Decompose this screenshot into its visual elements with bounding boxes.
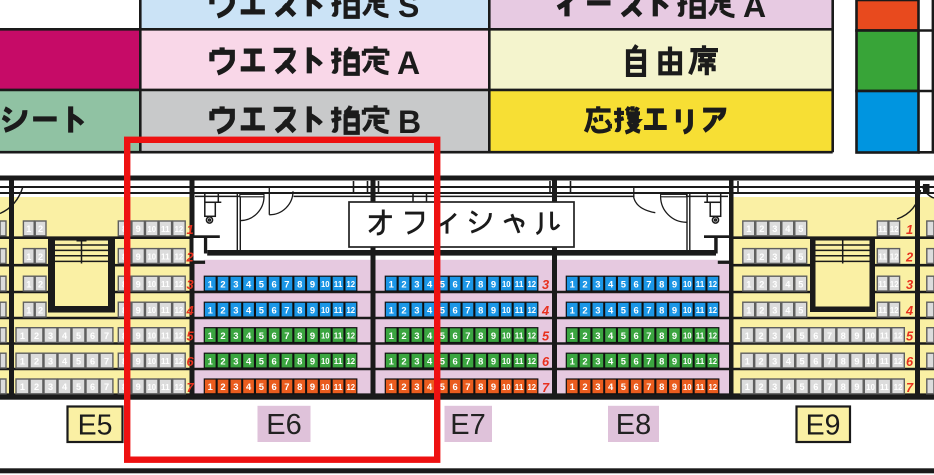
svg-text:3: 3 <box>906 277 913 292</box>
svg-text:6: 6 <box>633 355 638 366</box>
svg-text:7: 7 <box>284 381 289 392</box>
svg-text:E8: E8 <box>616 409 651 441</box>
svg-text:7: 7 <box>104 356 109 366</box>
svg-text:9: 9 <box>491 355 496 366</box>
svg-text:10: 10 <box>148 253 157 262</box>
svg-text:1: 1 <box>26 224 31 234</box>
svg-text:3: 3 <box>595 355 600 366</box>
svg-text:4: 4 <box>427 355 433 366</box>
svg-text:4: 4 <box>608 381 614 392</box>
svg-text:11: 11 <box>878 280 887 289</box>
svg-text:6: 6 <box>452 278 457 289</box>
svg-text:3: 3 <box>414 381 419 392</box>
svg-text:12: 12 <box>890 280 899 289</box>
svg-text:3: 3 <box>48 356 53 366</box>
svg-text:1: 1 <box>208 278 213 289</box>
svg-text:3: 3 <box>414 355 419 366</box>
svg-text:11: 11 <box>515 305 524 315</box>
svg-text:6: 6 <box>633 330 638 341</box>
svg-text:1: 1 <box>745 331 750 341</box>
svg-text:9: 9 <box>672 355 677 366</box>
svg-text:2: 2 <box>582 355 587 366</box>
svg-text:6: 6 <box>813 356 818 366</box>
svg-text:2: 2 <box>38 252 43 262</box>
svg-text:7: 7 <box>465 381 470 392</box>
svg-text:9: 9 <box>491 330 496 341</box>
svg-text:5: 5 <box>76 382 81 392</box>
svg-text:5: 5 <box>259 304 264 315</box>
svg-text:5: 5 <box>259 278 264 289</box>
svg-text:4: 4 <box>608 278 614 289</box>
svg-text:8: 8 <box>659 304 664 315</box>
svg-text:11: 11 <box>515 331 524 341</box>
svg-text:11: 11 <box>878 253 887 262</box>
svg-text:3: 3 <box>48 382 53 392</box>
svg-text:6: 6 <box>906 354 914 369</box>
svg-text:11: 11 <box>334 356 343 366</box>
svg-text:5: 5 <box>621 304 626 315</box>
svg-text:3: 3 <box>233 278 238 289</box>
svg-text:9: 9 <box>672 304 677 315</box>
svg-text:5: 5 <box>440 330 445 341</box>
svg-text:3: 3 <box>595 278 600 289</box>
svg-text:7: 7 <box>284 304 289 315</box>
svg-text:2: 2 <box>759 224 764 234</box>
svg-text:2: 2 <box>220 355 225 366</box>
svg-text:4: 4 <box>608 304 614 315</box>
svg-text:5: 5 <box>76 331 81 341</box>
svg-text:1: 1 <box>208 381 213 392</box>
svg-text:4: 4 <box>62 356 68 366</box>
svg-text:11: 11 <box>696 279 705 289</box>
svg-text:2: 2 <box>34 331 39 341</box>
svg-text:6: 6 <box>271 304 276 315</box>
svg-text:10: 10 <box>866 357 875 366</box>
svg-text:2: 2 <box>759 279 764 289</box>
svg-text:1: 1 <box>186 222 193 237</box>
svg-text:10: 10 <box>148 306 157 315</box>
svg-text:4: 4 <box>62 331 68 341</box>
svg-text:1: 1 <box>389 330 394 341</box>
svg-text:5: 5 <box>798 252 803 262</box>
svg-text:4: 4 <box>246 355 252 366</box>
svg-text:5: 5 <box>800 331 805 341</box>
svg-text:2: 2 <box>582 330 587 341</box>
svg-text:5: 5 <box>440 381 445 392</box>
svg-text:6: 6 <box>813 382 818 392</box>
svg-text:2: 2 <box>38 305 43 315</box>
svg-text:7: 7 <box>186 380 194 395</box>
svg-text:1: 1 <box>208 330 213 341</box>
svg-text:6: 6 <box>271 278 276 289</box>
svg-text:2: 2 <box>401 381 406 392</box>
svg-text:A: A <box>743 0 766 24</box>
svg-text:1: 1 <box>745 356 750 366</box>
svg-text:5: 5 <box>186 329 194 344</box>
svg-text:6: 6 <box>452 304 457 315</box>
svg-text:11: 11 <box>334 382 343 392</box>
svg-text:11: 11 <box>161 357 170 366</box>
svg-text:10: 10 <box>502 279 511 289</box>
svg-text:12: 12 <box>347 279 356 289</box>
svg-text:10: 10 <box>683 279 692 289</box>
svg-text:9: 9 <box>310 304 315 315</box>
svg-text:4: 4 <box>541 303 549 318</box>
svg-text:5: 5 <box>798 305 803 315</box>
svg-text:12: 12 <box>890 306 899 315</box>
svg-text:11: 11 <box>161 383 170 392</box>
svg-text:5: 5 <box>259 381 264 392</box>
svg-text:11: 11 <box>161 306 170 315</box>
svg-text:10: 10 <box>148 332 157 341</box>
svg-text:6: 6 <box>271 330 276 341</box>
svg-text:3: 3 <box>595 381 600 392</box>
svg-text:4: 4 <box>786 356 792 366</box>
svg-text:8: 8 <box>659 330 664 341</box>
svg-text:7: 7 <box>465 304 470 315</box>
svg-text:E6: E6 <box>266 409 301 441</box>
svg-text:3: 3 <box>772 382 777 392</box>
svg-text:12: 12 <box>894 357 903 366</box>
svg-text:10: 10 <box>683 382 692 392</box>
svg-text:2: 2 <box>758 382 763 392</box>
svg-text:5: 5 <box>440 278 445 289</box>
svg-text:12: 12 <box>528 279 537 289</box>
svg-text:12: 12 <box>347 356 356 366</box>
svg-text:7: 7 <box>646 330 651 341</box>
svg-text:8: 8 <box>297 381 302 392</box>
svg-text:8: 8 <box>478 304 483 315</box>
svg-text:11: 11 <box>696 331 705 341</box>
svg-text:10: 10 <box>502 382 511 392</box>
svg-text:2: 2 <box>582 304 587 315</box>
svg-text:4: 4 <box>905 303 913 318</box>
svg-text:8: 8 <box>297 355 302 366</box>
svg-text:3: 3 <box>772 252 777 262</box>
svg-text:2: 2 <box>401 330 406 341</box>
svg-text:10: 10 <box>321 382 330 392</box>
svg-text:10: 10 <box>148 383 157 392</box>
svg-text:11: 11 <box>696 356 705 366</box>
svg-text:7: 7 <box>646 355 651 366</box>
svg-text:7: 7 <box>465 330 470 341</box>
svg-text:4: 4 <box>246 278 252 289</box>
svg-text:3: 3 <box>186 277 193 292</box>
svg-text:3: 3 <box>542 277 549 292</box>
svg-text:2: 2 <box>759 252 764 262</box>
svg-text:4: 4 <box>246 304 252 315</box>
svg-text:10: 10 <box>148 280 157 289</box>
svg-text:7: 7 <box>646 278 651 289</box>
svg-text:4: 4 <box>608 355 614 366</box>
svg-text:11: 11 <box>515 382 524 392</box>
svg-text:6: 6 <box>90 356 95 366</box>
svg-text:4: 4 <box>427 330 433 341</box>
svg-text:7: 7 <box>906 380 914 395</box>
svg-text:8: 8 <box>478 355 483 366</box>
svg-text:E5: E5 <box>78 410 113 442</box>
svg-text:10: 10 <box>866 332 875 341</box>
svg-text:5: 5 <box>259 330 264 341</box>
svg-text:1: 1 <box>746 305 751 315</box>
svg-text:2: 2 <box>582 278 587 289</box>
svg-text:2: 2 <box>220 330 225 341</box>
svg-text:5: 5 <box>542 329 550 344</box>
svg-text:11: 11 <box>880 383 889 392</box>
svg-text:1: 1 <box>746 279 751 289</box>
svg-text:3: 3 <box>233 381 238 392</box>
svg-text:11: 11 <box>515 356 524 366</box>
svg-text:12: 12 <box>175 332 184 341</box>
svg-text:1: 1 <box>26 305 31 315</box>
svg-text:1: 1 <box>570 355 575 366</box>
svg-text:5: 5 <box>621 355 626 366</box>
svg-text:6: 6 <box>90 331 95 341</box>
svg-text:4: 4 <box>427 278 433 289</box>
svg-text:7: 7 <box>542 380 550 395</box>
svg-text:10: 10 <box>683 331 692 341</box>
svg-text:7: 7 <box>284 355 289 366</box>
svg-text:10: 10 <box>502 305 511 315</box>
svg-text:3: 3 <box>414 330 419 341</box>
svg-text:1: 1 <box>26 279 31 289</box>
svg-text:1: 1 <box>208 304 213 315</box>
svg-text:11: 11 <box>515 279 524 289</box>
svg-text:6: 6 <box>633 381 638 392</box>
svg-text:6: 6 <box>271 355 276 366</box>
svg-text:8: 8 <box>659 381 664 392</box>
svg-text:4: 4 <box>246 381 252 392</box>
svg-text:12: 12 <box>709 356 718 366</box>
svg-text:8: 8 <box>841 382 846 392</box>
svg-text:1: 1 <box>20 331 25 341</box>
svg-text:9: 9 <box>854 356 859 366</box>
svg-text:3: 3 <box>595 304 600 315</box>
svg-text:3: 3 <box>772 279 777 289</box>
svg-text:A: A <box>397 45 420 81</box>
svg-text:11: 11 <box>696 382 705 392</box>
svg-text:1: 1 <box>746 252 751 262</box>
svg-text:9: 9 <box>310 330 315 341</box>
svg-text:6: 6 <box>271 381 276 392</box>
svg-text:3: 3 <box>414 278 419 289</box>
svg-text:9: 9 <box>491 381 496 392</box>
svg-text:6: 6 <box>542 354 550 369</box>
svg-text:12: 12 <box>347 305 356 315</box>
svg-text:10: 10 <box>502 331 511 341</box>
svg-text:9: 9 <box>672 278 677 289</box>
svg-text:3: 3 <box>233 330 238 341</box>
svg-text:2: 2 <box>38 224 43 234</box>
svg-text:3: 3 <box>772 224 777 234</box>
svg-text:1: 1 <box>389 278 394 289</box>
svg-text:12: 12 <box>894 332 903 341</box>
svg-text:5: 5 <box>621 381 626 392</box>
svg-text:4: 4 <box>427 381 433 392</box>
svg-text:9: 9 <box>672 381 677 392</box>
svg-text:10: 10 <box>321 305 330 315</box>
svg-text:8: 8 <box>297 278 302 289</box>
svg-text:11: 11 <box>161 225 170 234</box>
svg-text:10: 10 <box>321 356 330 366</box>
svg-text:12: 12 <box>528 382 537 392</box>
svg-text:2: 2 <box>401 355 406 366</box>
svg-text:E7: E7 <box>450 409 485 441</box>
svg-text:8: 8 <box>478 381 483 392</box>
svg-text:3: 3 <box>772 331 777 341</box>
svg-text:8: 8 <box>659 355 664 366</box>
svg-text:1: 1 <box>746 224 751 234</box>
svg-text:8: 8 <box>841 331 846 341</box>
svg-text:10: 10 <box>321 279 330 289</box>
svg-text:2: 2 <box>34 356 39 366</box>
svg-text:9: 9 <box>854 331 859 341</box>
svg-text:12: 12 <box>890 225 899 234</box>
svg-text:4: 4 <box>785 305 791 315</box>
svg-text:5: 5 <box>621 330 626 341</box>
svg-text:6: 6 <box>813 331 818 341</box>
svg-text:10: 10 <box>321 331 330 341</box>
svg-text:9: 9 <box>491 304 496 315</box>
svg-text:2: 2 <box>758 356 763 366</box>
svg-text:11: 11 <box>161 332 170 341</box>
svg-text:10: 10 <box>148 357 157 366</box>
svg-text:8: 8 <box>297 330 302 341</box>
svg-text:1: 1 <box>20 382 25 392</box>
svg-text:3: 3 <box>772 356 777 366</box>
svg-text:1: 1 <box>906 222 913 237</box>
svg-text:12: 12 <box>175 357 184 366</box>
svg-text:10: 10 <box>866 383 875 392</box>
svg-text:5: 5 <box>76 356 81 366</box>
svg-text:4: 4 <box>185 303 193 318</box>
svg-text:5: 5 <box>440 304 445 315</box>
svg-text:5: 5 <box>800 356 805 366</box>
svg-text:9: 9 <box>854 382 859 392</box>
svg-text:1: 1 <box>570 330 575 341</box>
svg-text:2: 2 <box>401 304 406 315</box>
svg-text:4: 4 <box>786 382 792 392</box>
svg-text:1: 1 <box>570 278 575 289</box>
svg-text:7: 7 <box>465 278 470 289</box>
svg-text:7: 7 <box>284 278 289 289</box>
svg-text:5: 5 <box>798 224 803 234</box>
svg-text:3: 3 <box>233 304 238 315</box>
svg-text:2: 2 <box>38 279 43 289</box>
svg-text:7: 7 <box>646 304 651 315</box>
svg-text:1: 1 <box>389 355 394 366</box>
svg-text:4: 4 <box>62 382 68 392</box>
svg-text:8: 8 <box>478 278 483 289</box>
svg-text:12: 12 <box>528 356 537 366</box>
svg-text:2: 2 <box>582 381 587 392</box>
svg-text:1: 1 <box>389 381 394 392</box>
svg-text:10: 10 <box>148 225 157 234</box>
svg-text:12: 12 <box>347 382 356 392</box>
svg-text:8: 8 <box>841 356 846 366</box>
svg-text:12: 12 <box>709 279 718 289</box>
svg-text:9: 9 <box>136 356 141 366</box>
svg-text:3: 3 <box>414 304 419 315</box>
svg-text:12: 12 <box>528 305 537 315</box>
svg-text:5: 5 <box>621 278 626 289</box>
svg-text:4: 4 <box>785 252 791 262</box>
svg-text:11: 11 <box>334 331 343 341</box>
svg-text:9: 9 <box>136 305 141 315</box>
svg-text:2: 2 <box>185 250 193 265</box>
svg-text:11: 11 <box>696 305 705 315</box>
svg-text:7: 7 <box>284 330 289 341</box>
svg-text:2: 2 <box>401 278 406 289</box>
svg-text:4: 4 <box>786 331 792 341</box>
svg-text:9: 9 <box>672 330 677 341</box>
svg-text:7: 7 <box>827 331 832 341</box>
svg-text:7: 7 <box>827 356 832 366</box>
svg-text:11: 11 <box>161 253 170 262</box>
svg-text:B: B <box>398 104 421 140</box>
svg-text:1: 1 <box>570 381 575 392</box>
svg-text:7: 7 <box>104 331 109 341</box>
svg-text:12: 12 <box>175 383 184 392</box>
svg-text:9: 9 <box>136 331 141 341</box>
svg-text:12: 12 <box>175 225 184 234</box>
svg-text:11: 11 <box>878 225 887 234</box>
svg-text:E9: E9 <box>806 410 841 442</box>
svg-text:2: 2 <box>759 305 764 315</box>
svg-text:5: 5 <box>798 279 803 289</box>
svg-text:12: 12 <box>709 331 718 341</box>
svg-text:2: 2 <box>758 331 763 341</box>
svg-text:6: 6 <box>452 330 457 341</box>
svg-text:12: 12 <box>528 331 537 341</box>
svg-text:1: 1 <box>26 252 31 262</box>
svg-text:9: 9 <box>310 355 315 366</box>
svg-text:9: 9 <box>491 278 496 289</box>
svg-text:2: 2 <box>905 250 913 265</box>
svg-text:6: 6 <box>633 304 638 315</box>
svg-text:7: 7 <box>104 382 109 392</box>
svg-text:9: 9 <box>136 279 141 289</box>
svg-text:6: 6 <box>186 354 194 369</box>
svg-text:4: 4 <box>608 330 614 341</box>
svg-text:11: 11 <box>878 306 887 315</box>
svg-text:12: 12 <box>347 331 356 341</box>
svg-text:2: 2 <box>34 382 39 392</box>
svg-text:7: 7 <box>827 382 832 392</box>
svg-text:12: 12 <box>175 280 184 289</box>
svg-text:11: 11 <box>880 332 889 341</box>
svg-text:10: 10 <box>683 356 692 366</box>
svg-text:8: 8 <box>659 278 664 289</box>
svg-text:1: 1 <box>208 355 213 366</box>
svg-text:3: 3 <box>233 355 238 366</box>
svg-text:2: 2 <box>220 278 225 289</box>
svg-text:1: 1 <box>745 382 750 392</box>
svg-text:6: 6 <box>90 382 95 392</box>
svg-text:9: 9 <box>136 382 141 392</box>
svg-text:2: 2 <box>220 381 225 392</box>
svg-text:9: 9 <box>310 278 315 289</box>
svg-text:5: 5 <box>440 355 445 366</box>
svg-text:4: 4 <box>246 330 252 341</box>
svg-text:12: 12 <box>175 306 184 315</box>
svg-text:5: 5 <box>259 355 264 366</box>
svg-text:6: 6 <box>452 381 457 392</box>
svg-text:3: 3 <box>595 330 600 341</box>
svg-text:3: 3 <box>772 305 777 315</box>
svg-text:9: 9 <box>310 381 315 392</box>
svg-text:12: 12 <box>894 383 903 392</box>
